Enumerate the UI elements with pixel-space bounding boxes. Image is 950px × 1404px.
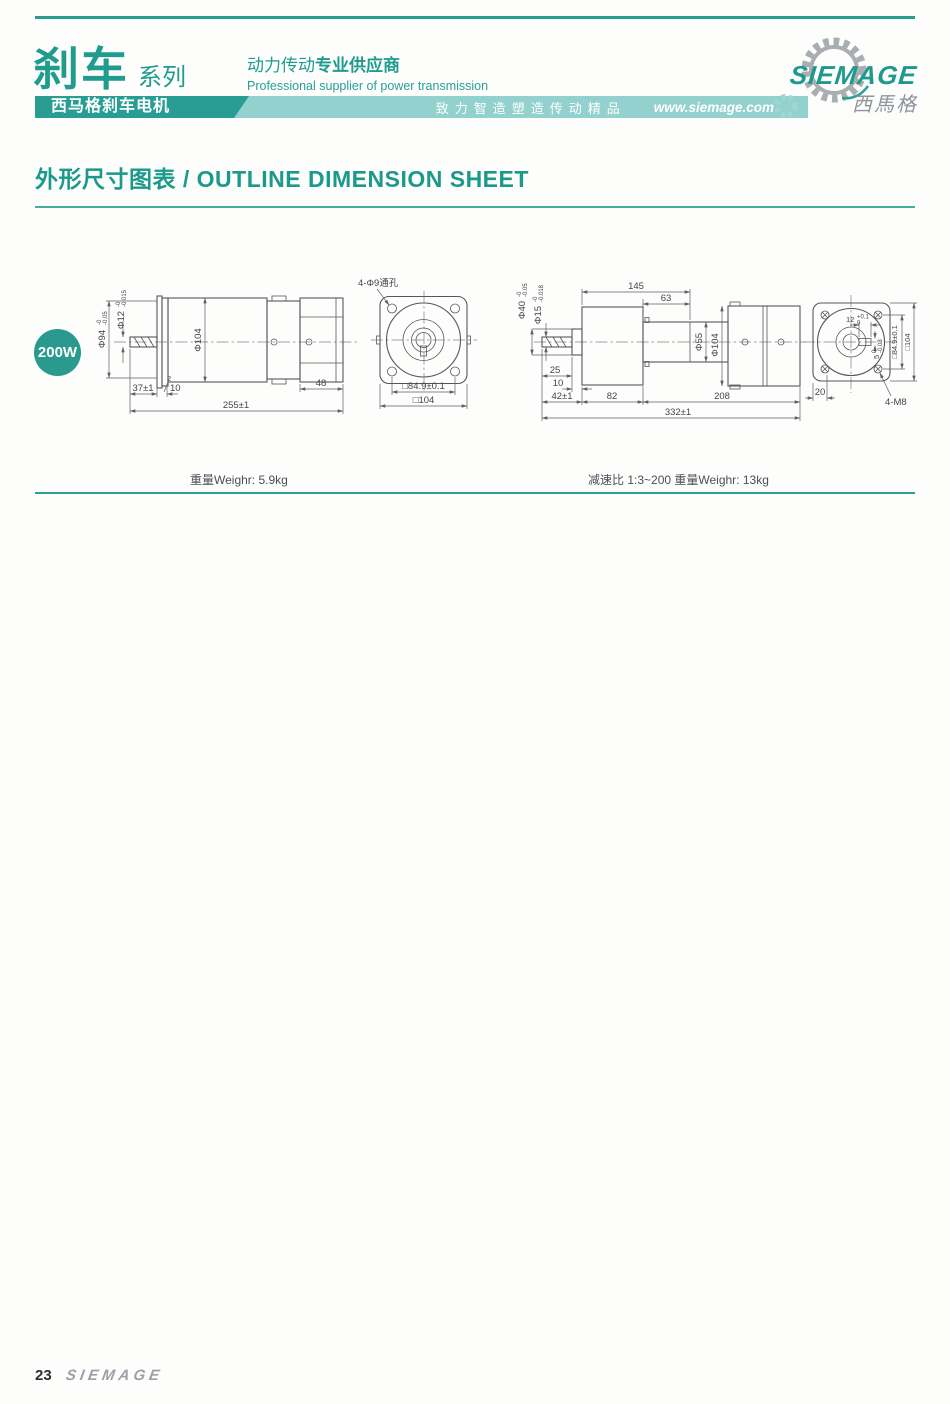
- website-link[interactable]: www.siemage.com: [654, 100, 774, 115]
- dim-dia104: Φ104: [193, 328, 204, 351]
- dim-len208: 208: [714, 391, 730, 402]
- left-front-dimensions: 4-Φ9通孔 □84.9±0.1 □104: [358, 278, 467, 409]
- dim-key5-tol-dn: -0.03: [878, 339, 884, 353]
- dim-len48: 48: [316, 378, 327, 389]
- power-badge: 200W: [34, 329, 81, 376]
- left-side-dimensions: Φ94 -0 -0.05 Φ12 -0 -0.015 Φ104 37±1 10 …: [97, 289, 343, 414]
- brand-wordmark-cn: 西馬格: [852, 88, 918, 117]
- dim-len10: 10: [170, 383, 181, 394]
- dim-len25: 25: [550, 365, 561, 376]
- divider-rule: [35, 492, 915, 494]
- page-number: 23: [35, 1367, 52, 1384]
- brand-logo: SIEMAGE 西馬格: [772, 28, 932, 123]
- label-holes: 4-Φ9通孔: [358, 278, 399, 289]
- dim-sq849-right: □84.9±0.1: [890, 325, 899, 359]
- tagline-cn-normal: 动力传动: [247, 56, 315, 75]
- dim-sq104-right: □104: [903, 333, 912, 350]
- left-side-view: [114, 296, 358, 388]
- dim-len82: 82: [607, 391, 618, 402]
- dim-dia12: Φ12: [116, 311, 127, 329]
- dim-dia40: Φ40: [517, 301, 528, 319]
- dim-sq104: □104: [413, 395, 435, 406]
- dim-len37: 37±1: [132, 383, 153, 394]
- caption-weight-left: 重量Weighr: 5.9kg: [190, 471, 288, 488]
- dim-len145: 145: [628, 281, 644, 292]
- series-title: 刹车 系列: [33, 33, 186, 99]
- dim-key12: 12: [846, 315, 854, 324]
- section-rule: [35, 206, 915, 208]
- dim-len63: 63: [661, 293, 672, 304]
- dim-dia94: Φ94: [97, 330, 108, 348]
- tagline-cn: 动力传动专业供应商: [247, 51, 488, 76]
- right-side-dimensions: 145 63 Φ40 -0 -0.05 Φ15 -0 -0.018 Φ55: [517, 281, 800, 421]
- dim-key12-tol-dn: 0: [857, 321, 861, 327]
- caption-weight-right: 减速比 1:3~200 重量Weighr: 13kg: [588, 471, 769, 488]
- dim-len10-right: 10: [553, 378, 564, 389]
- dim-dia15-tol-dn: -0.018: [539, 284, 545, 302]
- section-title: 外形尺寸图表 / OUTLINE DIMENSION SHEET: [35, 160, 529, 194]
- dim-dia94-tol-dn: -0.05: [103, 311, 109, 325]
- footer-brand: SIEMAGE: [64, 1367, 164, 1384]
- dim-len332: 332±1: [665, 407, 691, 418]
- tagline-en: Professional supplier of power transmiss…: [247, 79, 488, 93]
- label-tap-m8: 4-M8: [885, 397, 907, 408]
- dim-dia104-right: Φ104: [710, 333, 721, 356]
- dim-len2: 2: [167, 374, 171, 383]
- dim-dia15: Φ15: [533, 306, 544, 324]
- dim-sq849: □84.9±0.1: [402, 381, 445, 392]
- right-side-view: [534, 302, 806, 389]
- tagline: 动力传动专业供应商 Professional supplier of power…: [247, 51, 488, 93]
- tagline-cn-bold: 专业供应商: [315, 56, 400, 75]
- series-suffix: 系列: [138, 57, 186, 92]
- dim-dia40-tol-dn: -0.05: [523, 283, 529, 297]
- dim-key5: 5: [872, 355, 881, 359]
- drawing-brake-motor: Φ94 -0 -0.05 Φ12 -0 -0.015 Φ104 37±1 10 …: [90, 265, 510, 437]
- dim-len42: 42±1: [551, 391, 572, 402]
- series-name: 刹车: [33, 33, 129, 99]
- brand-wordmark: SIEMAGE: [788, 60, 918, 91]
- drawing-geared-brake-motor: 145 63 Φ40 -0 -0.05 Φ15 -0 -0.018 Φ55: [510, 265, 930, 437]
- header-band-light: 致力智造塑造传动精品 www.siemage.com: [200, 96, 808, 118]
- top-rule: [35, 16, 915, 19]
- right-front-dimensions: 12 +0.1 0 5 0 -0.03 □84.9±0.1 □104: [805, 303, 917, 408]
- page-footer: 23 SIEMAGE: [35, 1367, 163, 1384]
- dim-dia12-tol-dn: -0.015: [122, 289, 128, 307]
- dim-len255: 255±1: [223, 400, 249, 411]
- dim-len20: 20: [815, 387, 826, 398]
- left-front-view: [371, 291, 477, 393]
- band-slogan: 致力智造塑造传动精品: [436, 98, 626, 117]
- catalog-page: 刹车 系列 致力智造塑造传动精品 www.siemage.com 西马格刹车电机…: [0, 0, 950, 1404]
- dim-dia55: Φ55: [694, 333, 705, 351]
- band-label: 西马格刹车电机: [51, 98, 170, 115]
- header-band-dark: 西马格刹车电机: [35, 96, 249, 118]
